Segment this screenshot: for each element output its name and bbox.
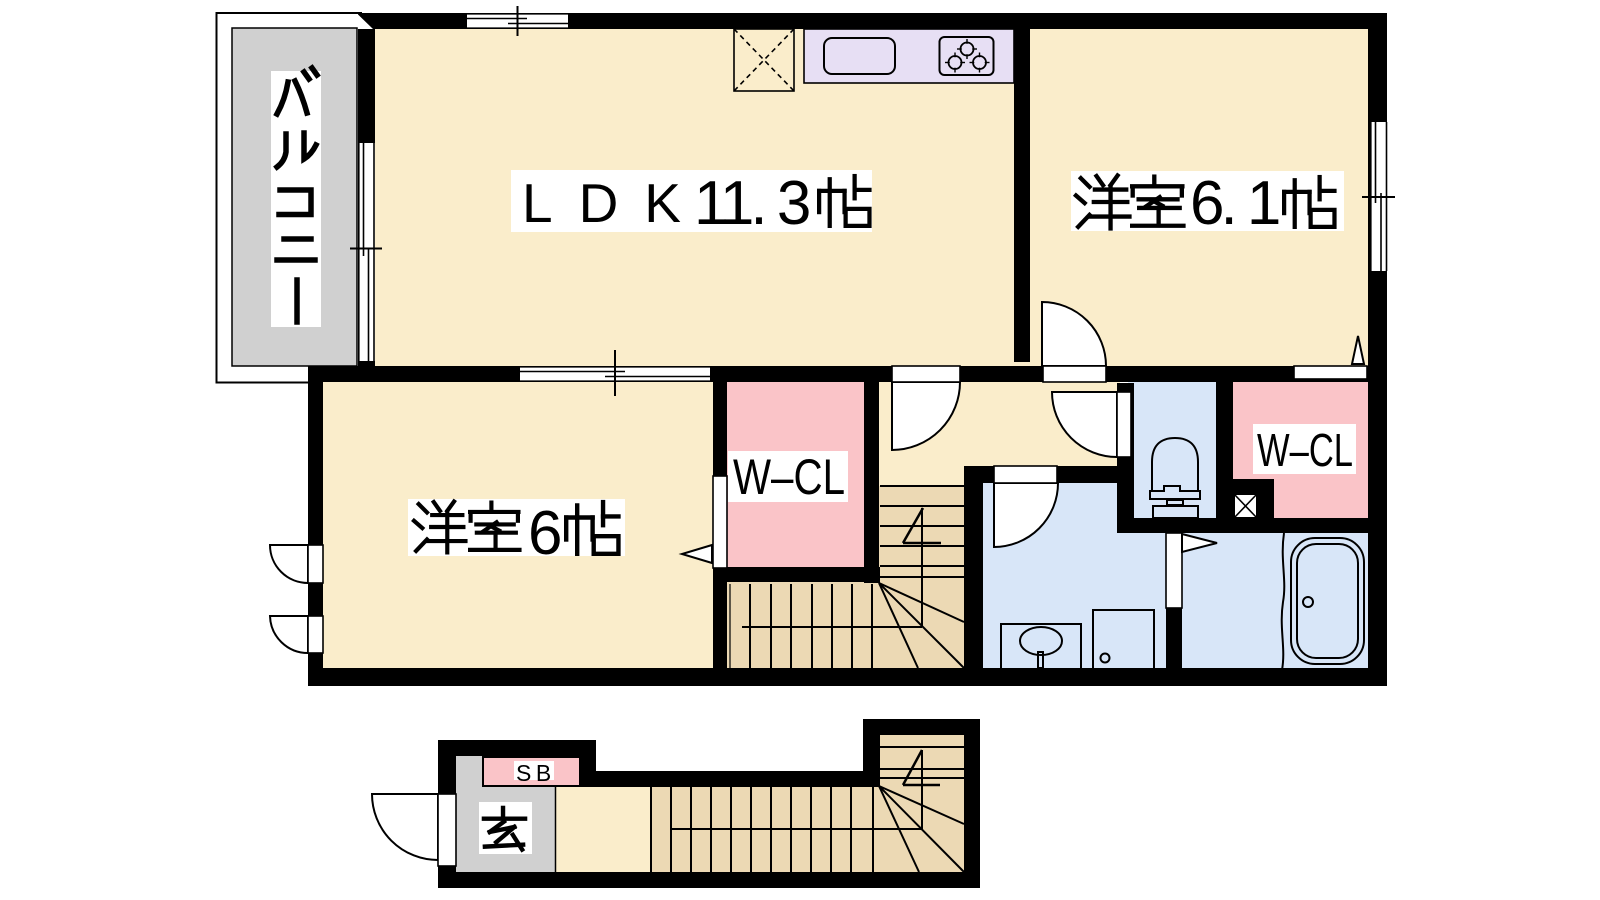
svg-text:W–CL: W–CL (1257, 424, 1353, 476)
svg-text:W–CL: W–CL (733, 449, 845, 505)
svg-text:6. 1: 6. 1 (1190, 169, 1279, 238)
svg-text:LDK: LDK (522, 172, 707, 234)
svg-text:6: 6 (528, 499, 562, 568)
svg-text:SB: SB (516, 760, 556, 786)
svg-text:11. 3: 11. 3 (694, 169, 809, 238)
